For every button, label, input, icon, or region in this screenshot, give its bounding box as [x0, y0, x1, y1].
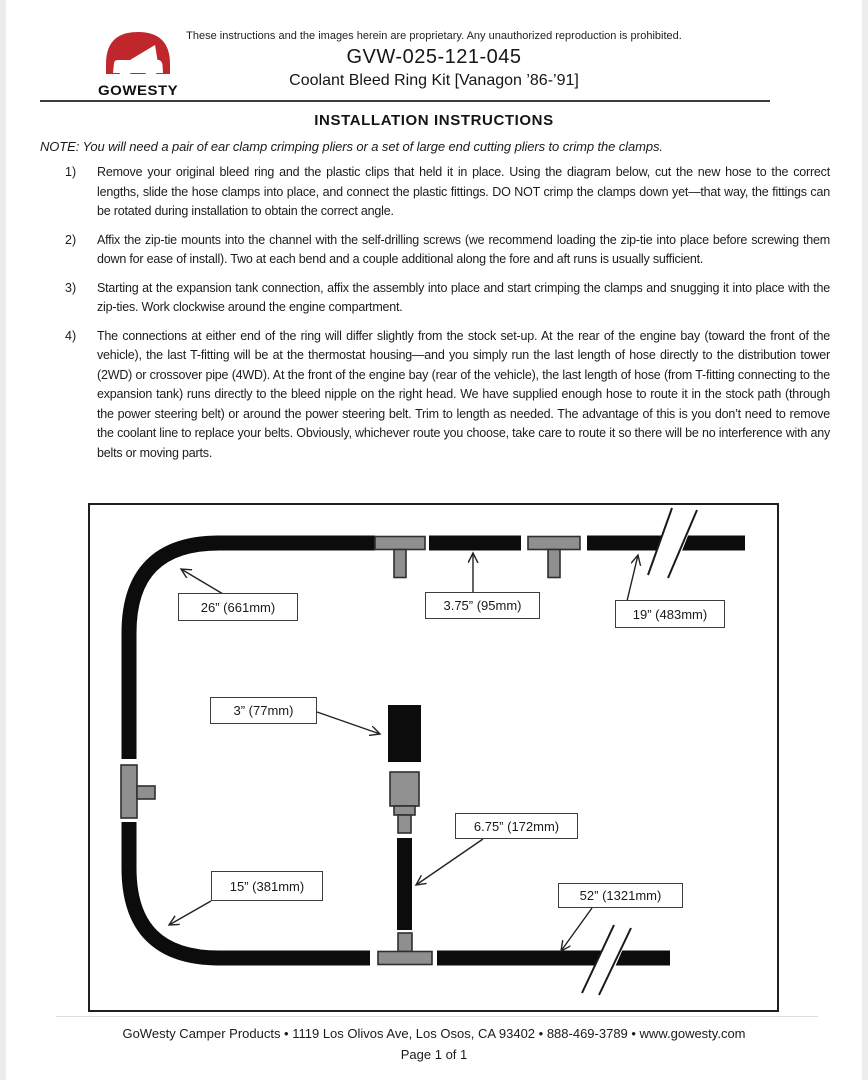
measurement-label-52in: 52” (1321mm) — [558, 883, 683, 908]
step-text: Remove your original bleed ring and the … — [97, 163, 830, 222]
measurement-label-26in: 26” (661mm) — [178, 593, 298, 621]
bleed-valve-fitting — [390, 772, 419, 833]
t-fitting-top-right — [528, 537, 580, 578]
footer-page-number: Page 1 of 1 — [6, 1047, 862, 1062]
note-text: NOTE: You will need a pair of ear clamp … — [40, 139, 828, 154]
t-fitting-left-side — [121, 765, 155, 818]
hose-52in — [437, 923, 670, 999]
hose-routing-diagram: 26” (661mm) 3.75” (95mm) 19” (483mm) 3” … — [88, 503, 779, 1012]
measurement-label-6-75in: 6.75” (172mm) — [455, 813, 578, 839]
footer-divider — [56, 1016, 818, 1017]
step-text: Affix the zip-tie mounts into the channe… — [97, 231, 830, 270]
step-text: The connections at either end of the rin… — [97, 327, 830, 464]
document-header: These instructions and the images herein… — [6, 30, 862, 90]
step-number: 1) — [65, 163, 97, 222]
step-number: 2) — [65, 231, 97, 270]
measurement-label-3in: 3” (77mm) — [210, 697, 317, 724]
t-fitting-bottom — [378, 933, 432, 965]
proprietary-notice: These instructions and the images herein… — [6, 30, 862, 42]
step-number: 4) — [65, 327, 97, 464]
header-divider — [40, 100, 770, 102]
instruction-step-2: 2) Affix the zip-tie mounts into the cha… — [40, 231, 830, 270]
page-title: INSTALLATION INSTRUCTIONS — [6, 112, 862, 129]
hose-26in — [129, 543, 375, 759]
product-title: Coolant Bleed Ring Kit [Vanagon ’86-’91] — [6, 72, 862, 90]
instruction-step-4: 4) The connections at either end of the … — [40, 327, 830, 464]
measurement-label-15in: 15” (381mm) — [211, 871, 323, 901]
measurement-label-3-75in: 3.75” (95mm) — [425, 592, 540, 619]
part-number: GVW-025-121-045 — [6, 46, 862, 69]
step-text: Starting at the expansion tank connectio… — [97, 279, 830, 318]
hose-routing-drawing — [90, 505, 777, 1010]
document-page: GOWESTY These instructions and the image… — [6, 0, 862, 1080]
instruction-step-3: 3) Starting at the expansion tank connec… — [40, 279, 830, 318]
instruction-step-1: 1) Remove your original bleed ring and t… — [40, 163, 830, 222]
hose-3in — [388, 705, 421, 762]
step-number: 3) — [65, 279, 97, 318]
instruction-steps: 1) Remove your original bleed ring and t… — [40, 163, 830, 472]
footer-contact: GoWesty Camper Products • 1119 Los Olivo… — [6, 1026, 862, 1041]
t-fitting-top-left — [375, 537, 425, 578]
measurement-label-19in: 19” (483mm) — [615, 600, 725, 628]
hose-19in — [587, 506, 745, 581]
